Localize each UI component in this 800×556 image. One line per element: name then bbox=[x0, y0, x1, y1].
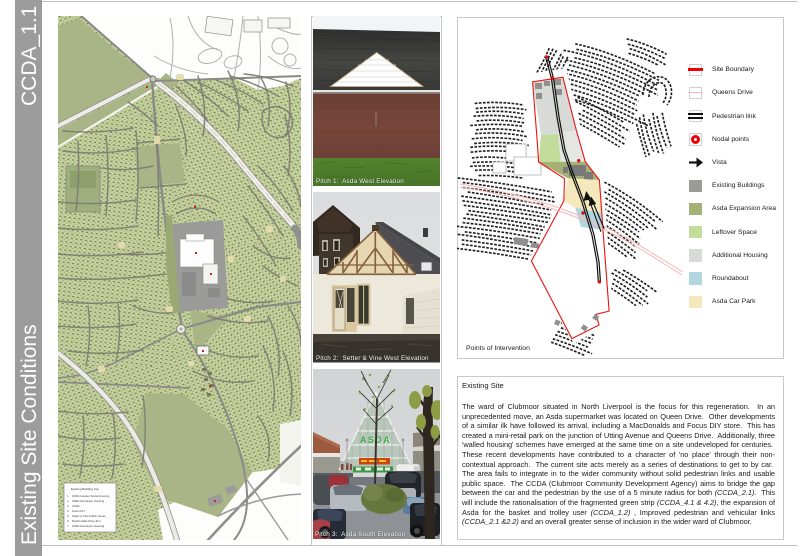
svg-text:Setter & Vine Public House: Setter & Vine Public House bbox=[72, 514, 106, 518]
svg-text:MacDonalds Drive-thru: MacDonalds Drive-thru bbox=[72, 519, 101, 523]
svg-text:Existing Building Key: Existing Building Key bbox=[71, 487, 100, 491]
svg-text:ASDA: ASDA bbox=[72, 504, 80, 508]
svg-text:1980s Developer Housing: 1980s Developer Housing bbox=[72, 499, 105, 503]
svg-text:1930s Greater Social Housing: 1930s Greater Social Housing bbox=[72, 494, 110, 498]
svg-text:Focus DIY: Focus DIY bbox=[72, 509, 85, 513]
svg-text:1990s Developer Housing: 1990s Developer Housing bbox=[72, 524, 105, 528]
